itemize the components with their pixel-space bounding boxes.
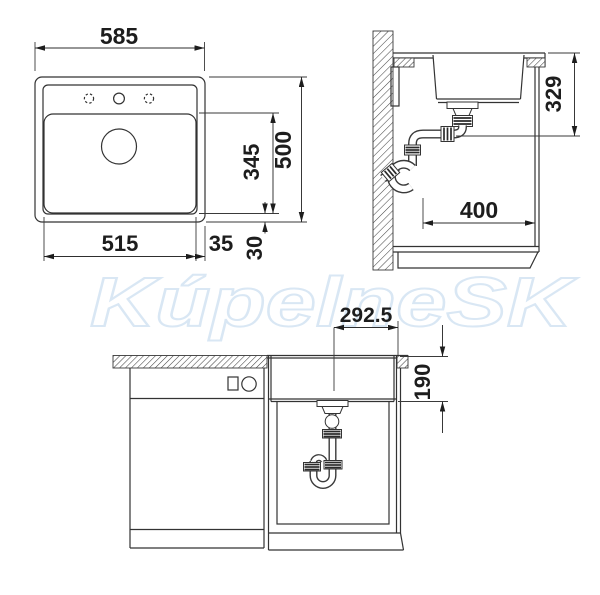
wall-section (373, 31, 393, 270)
plinth-edge (401, 533, 404, 550)
dim-label-190: 190 (410, 364, 435, 401)
dim-label-585: 585 (100, 23, 139, 49)
drain-pipe (381, 126, 462, 189)
control-knob (242, 377, 256, 391)
dim-basin-side-offset: 35 (193, 226, 233, 261)
faucet-hole-center (114, 93, 125, 104)
side-view: 329 400 (373, 31, 580, 270)
dim-label-30: 30 (242, 236, 267, 260)
top-view: 585 515 35 30 345 (35, 23, 307, 261)
dim-label-345: 345 (239, 144, 264, 181)
drain-hole (102, 129, 137, 164)
countertop-right-section (397, 356, 408, 369)
countertop-left-section (113, 356, 267, 369)
dim-bowl-depth: 190 (398, 325, 448, 433)
dim-label-515: 515 (102, 231, 139, 256)
technical-drawing-page: KúpelneSK 585 515 35 (0, 0, 600, 595)
dim-basin-width: 515 (44, 217, 196, 261)
pipe-nut (405, 145, 421, 155)
dim-label-400: 400 (460, 197, 498, 223)
drain-strainer (447, 102, 478, 127)
sink-outline (35, 77, 205, 222)
dim-label-329: 329 (541, 76, 566, 113)
control-rect (228, 377, 238, 390)
siphon-front (304, 401, 349, 486)
dim-clearance-depth: 400 (423, 197, 535, 229)
pipe-nut (323, 430, 342, 439)
dim-label-292-5: 292.5 (340, 304, 393, 327)
dim-label-500: 500 (270, 131, 296, 169)
dim-basin-length: 345 (199, 113, 279, 214)
dim-drain-height: 329 (456, 53, 580, 136)
pipe-nut (304, 463, 321, 472)
dim-overall-width: 585 (35, 23, 205, 71)
base-cabinet-side (393, 67, 539, 268)
pipe-nut (324, 461, 342, 470)
pipe-nut (441, 127, 454, 142)
dim-label-35: 35 (209, 231, 233, 256)
sink-bowl-section (433, 55, 524, 103)
appliance-cabinet-front (130, 368, 264, 548)
faucet-hole-left (84, 94, 93, 103)
sink-dimension-drawing: KúpelneSK 585 515 35 (0, 0, 600, 595)
faucet-hole-right (144, 94, 153, 103)
drain-strainer-front (317, 401, 348, 407)
